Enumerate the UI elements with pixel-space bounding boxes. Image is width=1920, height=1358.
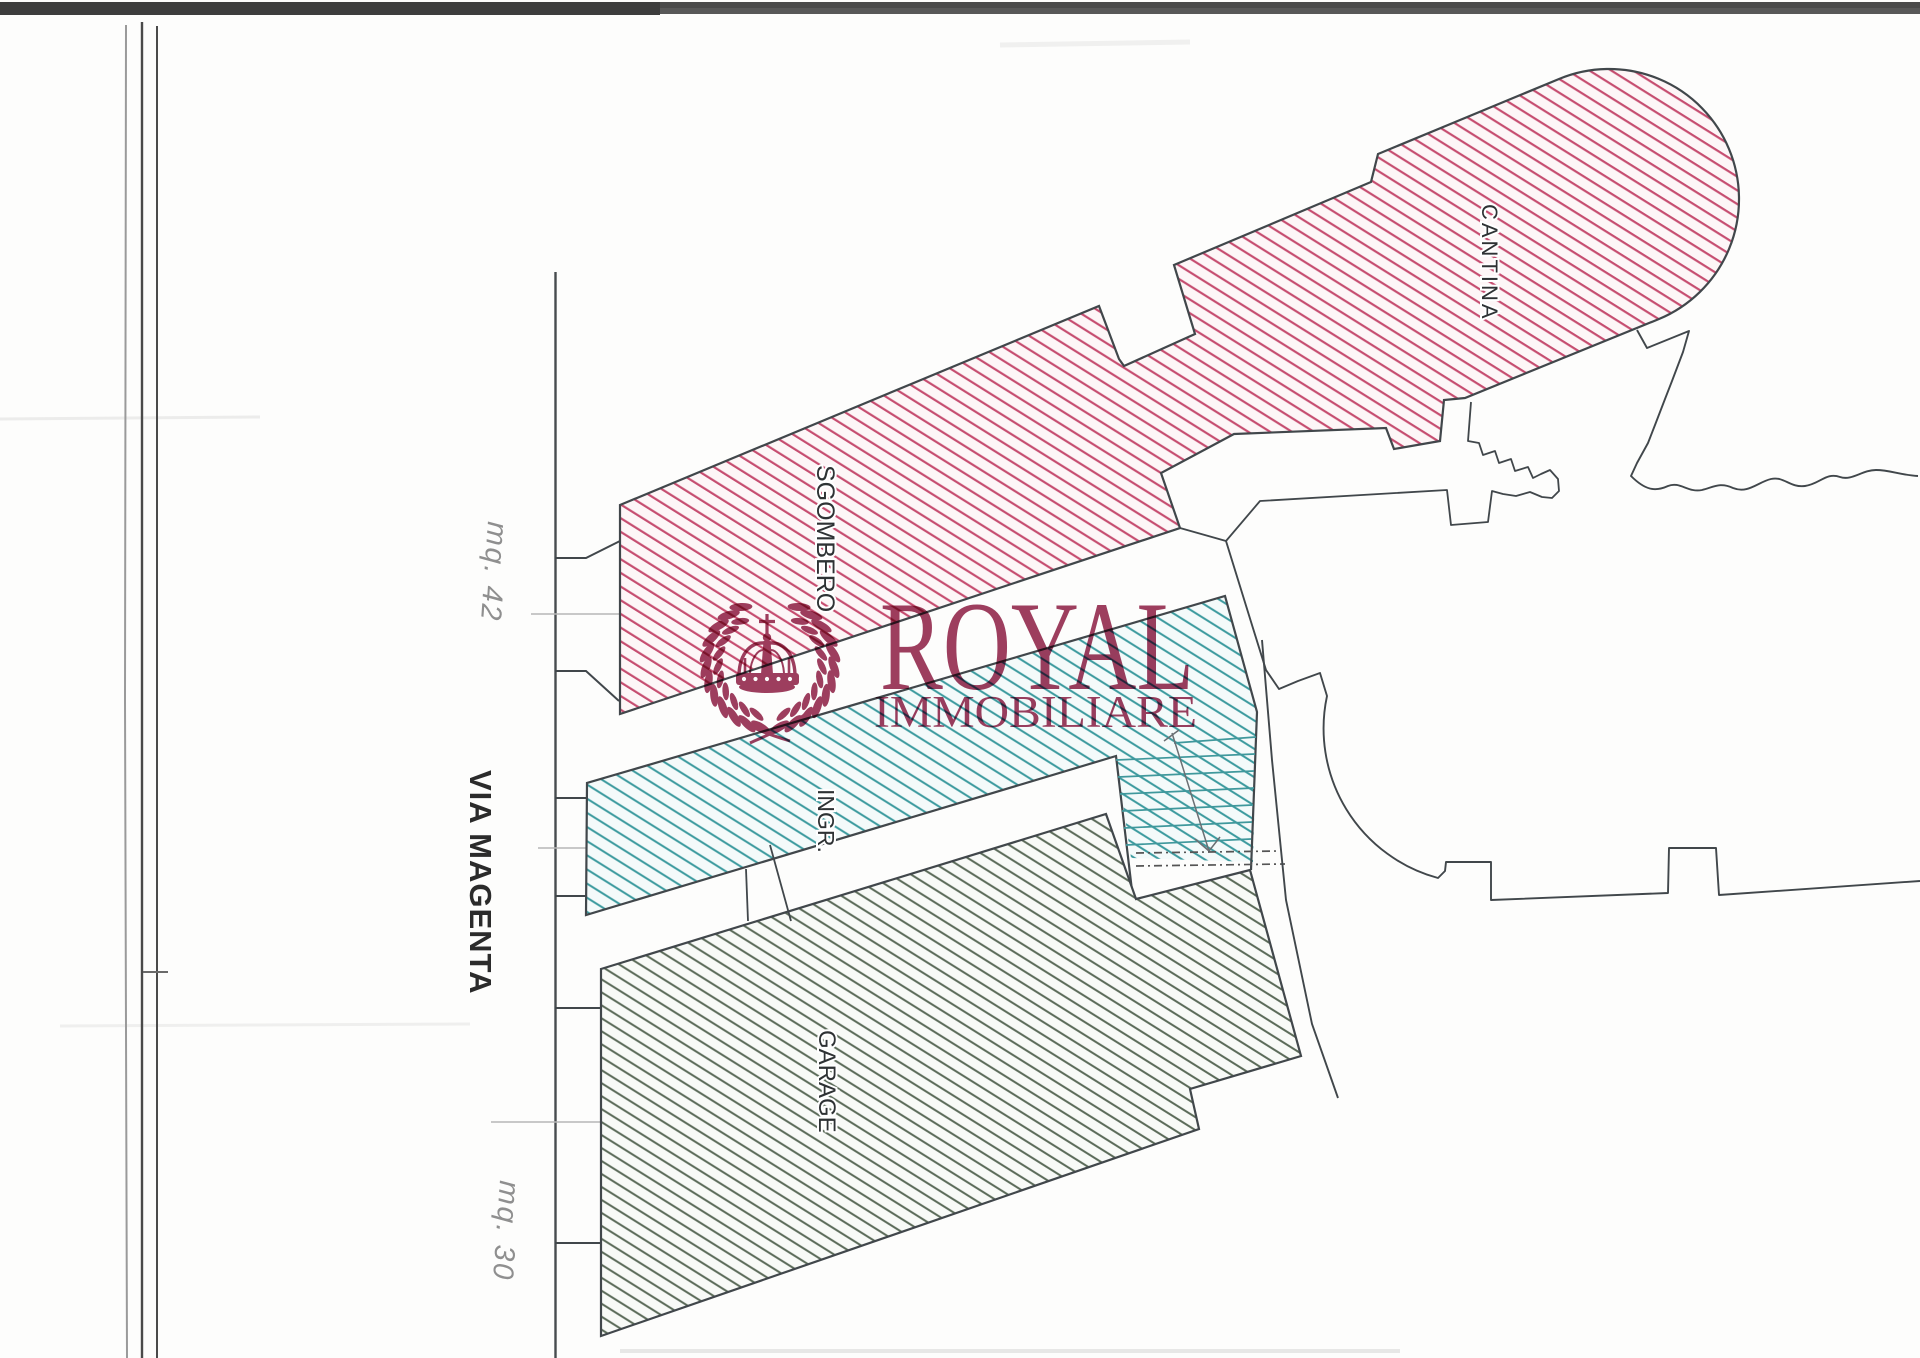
- svg-text:IMMOBILIARE: IMMOBILIARE: [874, 687, 1197, 737]
- svg-text:mq. 42: mq. 42: [474, 521, 513, 624]
- svg-text:SGOMBERO: SGOMBERO: [811, 465, 839, 612]
- svg-text:INGR.: INGR.: [813, 789, 839, 853]
- svg-text:CANTINA: CANTINA: [1477, 204, 1502, 322]
- svg-text:VIA MAGENTA: VIA MAGENTA: [463, 770, 498, 995]
- svg-text:mq. 30: mq. 30: [486, 1180, 525, 1283]
- svg-text:GARAGE: GARAGE: [813, 1030, 840, 1133]
